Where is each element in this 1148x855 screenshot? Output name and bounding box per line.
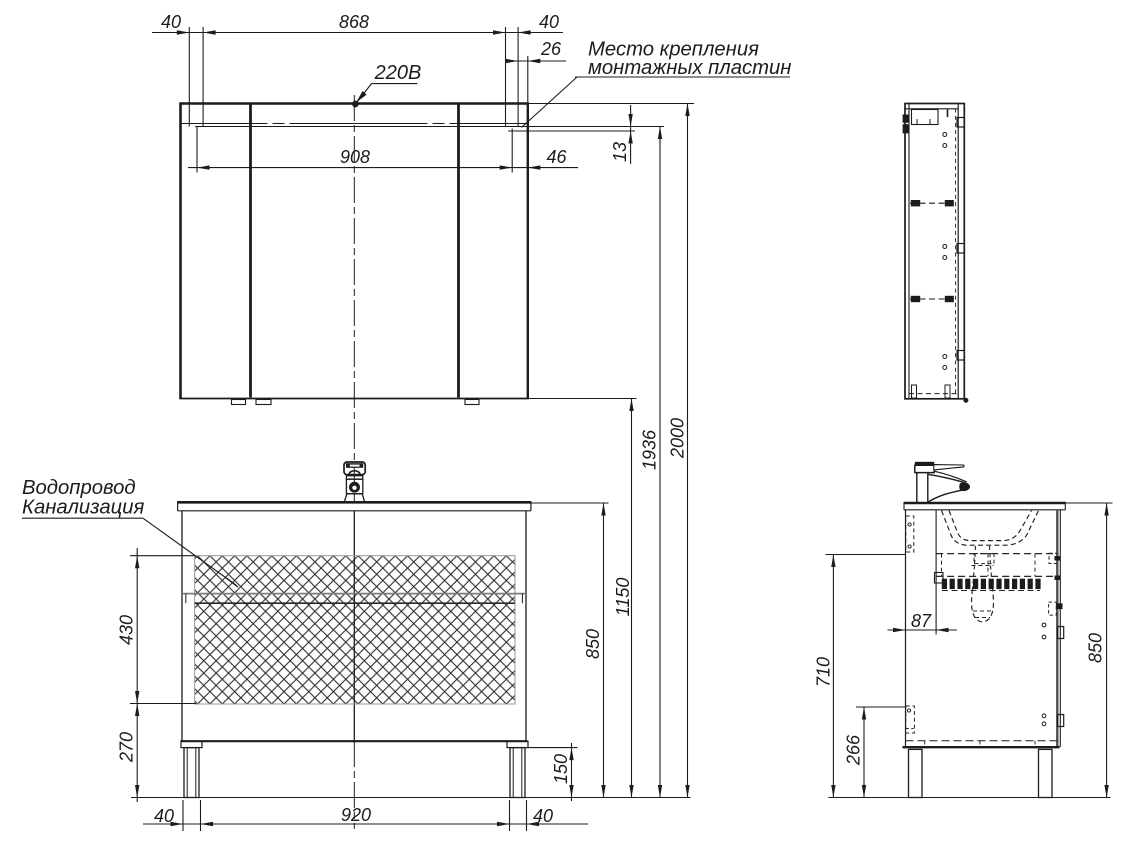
svg-text:710: 710 xyxy=(813,657,833,687)
svg-text:2000: 2000 xyxy=(667,418,687,459)
svg-text:26: 26 xyxy=(540,39,562,59)
svg-text:1150: 1150 xyxy=(613,578,633,617)
svg-text:40: 40 xyxy=(161,12,181,32)
svg-text:868: 868 xyxy=(339,12,369,32)
svg-text:46: 46 xyxy=(546,147,567,167)
svg-text:150: 150 xyxy=(551,754,571,784)
svg-text:266: 266 xyxy=(843,734,863,766)
svg-text:1936: 1936 xyxy=(639,429,659,470)
svg-text:монтажных пластин: монтажных пластин xyxy=(588,57,791,79)
svg-text:920: 920 xyxy=(341,805,371,825)
svg-text:13: 13 xyxy=(610,142,630,162)
svg-text:40: 40 xyxy=(539,12,559,32)
svg-text:87: 87 xyxy=(911,611,932,631)
svg-text:850: 850 xyxy=(1085,633,1105,663)
svg-text:430: 430 xyxy=(116,615,136,645)
svg-text:908: 908 xyxy=(340,147,370,167)
svg-text:850: 850 xyxy=(583,629,603,659)
svg-text:270: 270 xyxy=(116,732,136,763)
svg-text:Канализация: Канализация xyxy=(22,497,145,519)
svg-text:220В: 220В xyxy=(374,62,422,84)
svg-text:40: 40 xyxy=(154,806,174,826)
svg-text:40: 40 xyxy=(533,806,553,826)
